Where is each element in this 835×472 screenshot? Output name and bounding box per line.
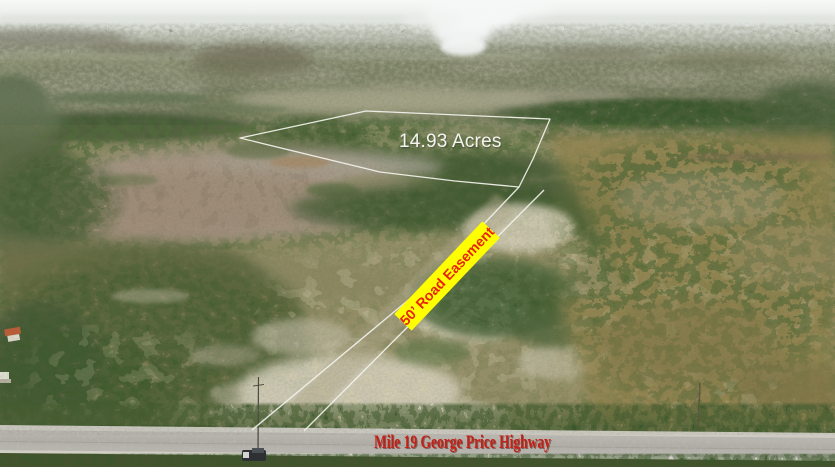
svg-text:14.93 Acres: 14.93 Acres	[399, 131, 502, 152]
svg-text:Mile 19 George Price Highway: Mile 19 George Price Highway	[374, 432, 551, 453]
